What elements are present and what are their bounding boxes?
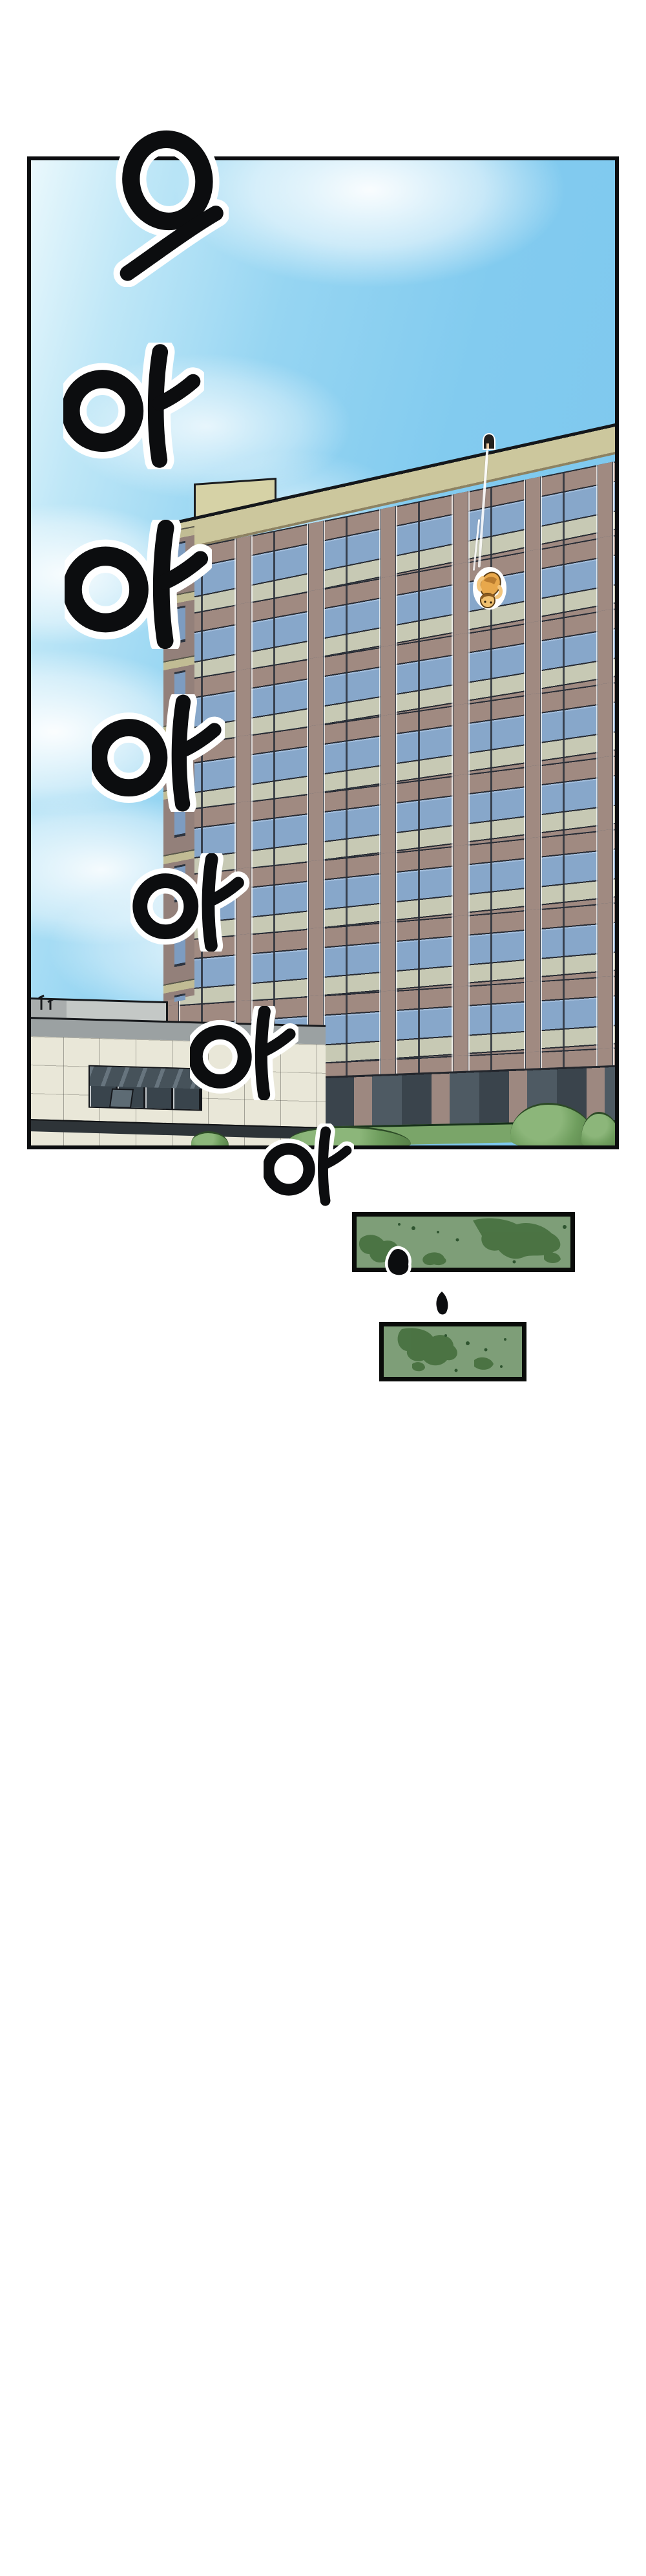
scream-syllable-ah-5 <box>190 1006 298 1100</box>
scream-syllable-ah-4 <box>130 853 251 952</box>
hedge-block-2 <box>379 1322 526 1381</box>
ink-droplet-2 <box>432 1290 452 1317</box>
open-window <box>109 1089 134 1109</box>
scream-syllable-ah-3 <box>92 694 225 812</box>
window-sheen <box>90 1067 201 1089</box>
scream-syllable-ah-1 <box>63 343 204 469</box>
ink-droplet-1 <box>382 1244 415 1280</box>
scream-syllable-ah-2 <box>65 520 212 649</box>
window-panes <box>90 1086 201 1110</box>
rooftop-observer <box>481 432 497 451</box>
rooftop-antenna <box>37 990 59 1012</box>
falling-figure <box>471 565 508 612</box>
scream-syllable-ah-6 <box>264 1123 354 1209</box>
hedge-texture <box>384 1326 522 1377</box>
low-building-windows <box>89 1065 202 1111</box>
scream-syllable-eu <box>111 125 229 287</box>
page <box>0 0 646 2576</box>
comic-panel <box>27 156 619 1149</box>
